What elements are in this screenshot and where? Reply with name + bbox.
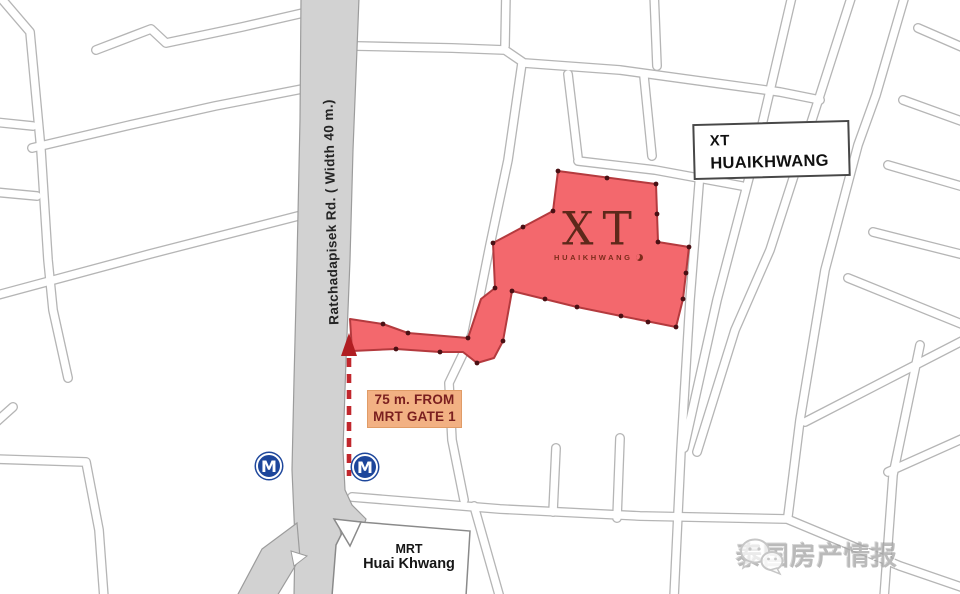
- watermark: 泰国房产情报: [736, 536, 898, 573]
- wechat-bubbles-icon: [736, 536, 786, 576]
- mrt-marker-icon: M: [256, 453, 282, 479]
- station-label: MRT Huai Khwang: [348, 542, 470, 572]
- road-name-label: Ratchadapisek Rd. ( Width 40 m.): [321, 99, 342, 325]
- station-label-line2: Huai Khwang: [348, 556, 470, 572]
- station-label-line1: MRT: [348, 542, 470, 556]
- distance-callout-line2: MRT GATE 1: [368, 409, 461, 426]
- distance-callout-line1: 75 m. FROM: [368, 392, 461, 409]
- site-logo-main: XT: [537, 207, 657, 253]
- project-name-box: XT HUAIKHWANG: [692, 120, 850, 180]
- mrt-marker-icon: M: [352, 454, 378, 480]
- map-canvas: Ratchadapisek Rd. ( Width 40 m.) XT HUAI…: [0, 0, 960, 594]
- distance-callout: 75 m. FROM MRT GATE 1: [367, 390, 462, 428]
- site-logo: XT HUAIKHWANG: [537, 208, 657, 262]
- project-name-line2: HUAIKHWANG: [710, 149, 849, 177]
- crescent-icon: [636, 254, 643, 261]
